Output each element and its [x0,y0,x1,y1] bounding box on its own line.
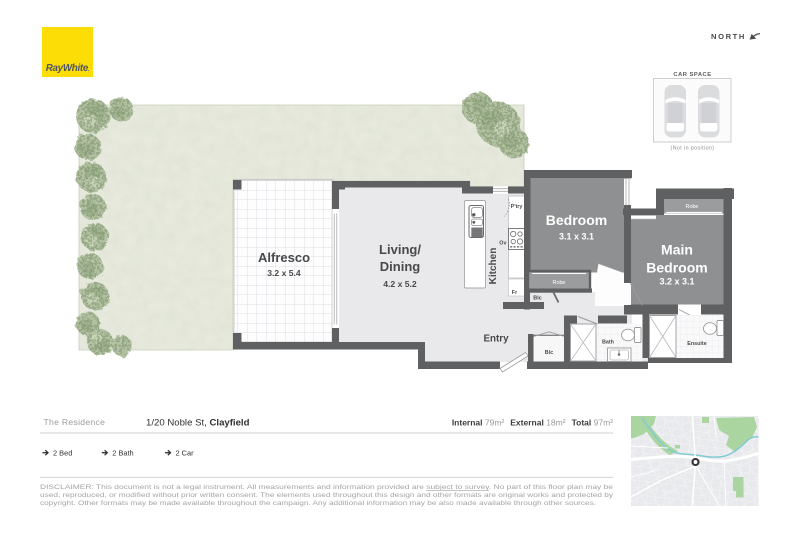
svg-text:Fr: Fr [512,290,518,296]
svg-text:Alfresco: Alfresco [258,250,310,265]
svg-text:Robe: Robe [553,280,566,286]
svg-text:(Not in position): (Not in position) [671,146,715,152]
svg-text:Internal 79m²External 18m²Tota: Internal 79m²External 18m²Total 97m² [452,418,613,428]
svg-text:3.2 x 3.1: 3.2 x 3.1 [659,277,694,287]
svg-text:Blc: Blc [545,350,553,356]
svg-text:Dining: Dining [380,259,420,274]
svg-text:3.1 x 3.1: 3.1 x 3.1 [559,232,594,242]
svg-text:Bedroom: Bedroom [646,260,707,276]
svg-text:3.2 x 5.4: 3.2 x 5.4 [267,268,301,278]
svg-text:CAR SPACE: CAR SPACE [673,72,711,78]
svg-text:The Residence: The Residence [44,417,106,427]
svg-text:2 Bath: 2 Bath [112,449,133,458]
svg-text:Blc: Blc [533,296,541,302]
svg-text:Bath: Bath [602,340,614,346]
svg-text:1/20 Noble St, Clayfield: 1/20 Noble St, Clayfield [146,418,250,429]
svg-text:P'try: P'try [511,204,523,210]
svg-text:used, reproduced, or modified: used, reproduced, or modified without pr… [40,492,614,499]
svg-text:4.2 x 5.2: 4.2 x 5.2 [383,279,417,289]
svg-text:Main: Main [661,242,693,258]
svg-text:Robe: Robe [686,204,699,210]
svg-text:2 Car: 2 Car [176,449,195,458]
svg-text:Living/: Living/ [379,242,421,257]
svg-text:NORTH: NORTH [711,32,746,41]
svg-text:2 Bed: 2 Bed [53,449,72,458]
svg-text:DISCLAIMER: This document is n: DISCLAIMER: This document is not a legal… [40,484,614,491]
svg-text:Bedroom: Bedroom [546,212,607,228]
svg-text:Kitchen: Kitchen [488,248,499,285]
svg-text:Ov: Ov [499,241,506,247]
svg-text:Ensuite: Ensuite [687,341,706,347]
svg-text:Entry: Entry [483,334,509,345]
svg-text:RayWhite.: RayWhite. [46,63,90,74]
svg-text:copyright. Other formats may b: copyright. Other formats may be made ava… [40,500,596,507]
